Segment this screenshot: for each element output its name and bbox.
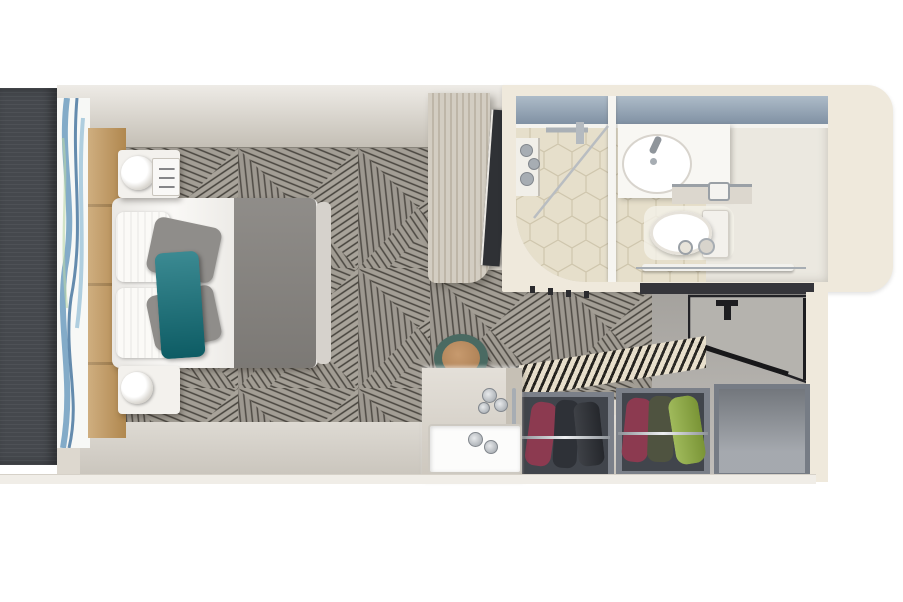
bathroom-interior [516,96,828,282]
toilet-brush [698,238,715,255]
perfume-bottle-2 [494,398,508,412]
perfume-bottle-3 [478,402,490,414]
bed-footboard [316,202,331,364]
balcony-door [0,88,57,465]
tray-bottle-1 [468,432,483,447]
toilet-paper-holder [708,182,730,201]
pillow-teal [154,251,205,360]
floor-drain [678,240,693,255]
clothes-rail-left [520,436,610,439]
cabin-floorplan-render [0,0,903,602]
entrance-door [688,294,814,390]
wall-hook-1 [530,286,535,293]
bottom-wall [0,474,816,484]
toiletry-bottle-1 [520,144,533,157]
tray-bottle-2 [484,440,498,454]
sink-drain [650,158,657,165]
luggage-compartment [714,384,810,478]
table-lamp-bottom [121,372,153,404]
towel-rail [636,267,806,269]
clothes-rail-right [618,432,708,435]
toiletry-bottle-3 [520,172,534,186]
wall-hook-2 [548,288,553,295]
toiletry-bottle-2 [528,158,540,170]
bed-runner [234,198,316,368]
wall-hook-4 [584,291,589,298]
table-lamp-top [121,156,155,190]
wardrobe-cubby-right [616,388,710,476]
wall-hook-3 [566,290,571,297]
wardrobe-cubby-left [516,392,614,480]
curtain-blue-streaks [57,98,90,448]
desk-chrome-handle [512,388,516,426]
bathroom-threshold-ledge [640,283,814,294]
curtain [57,98,90,448]
books-on-nightstand [152,158,180,196]
